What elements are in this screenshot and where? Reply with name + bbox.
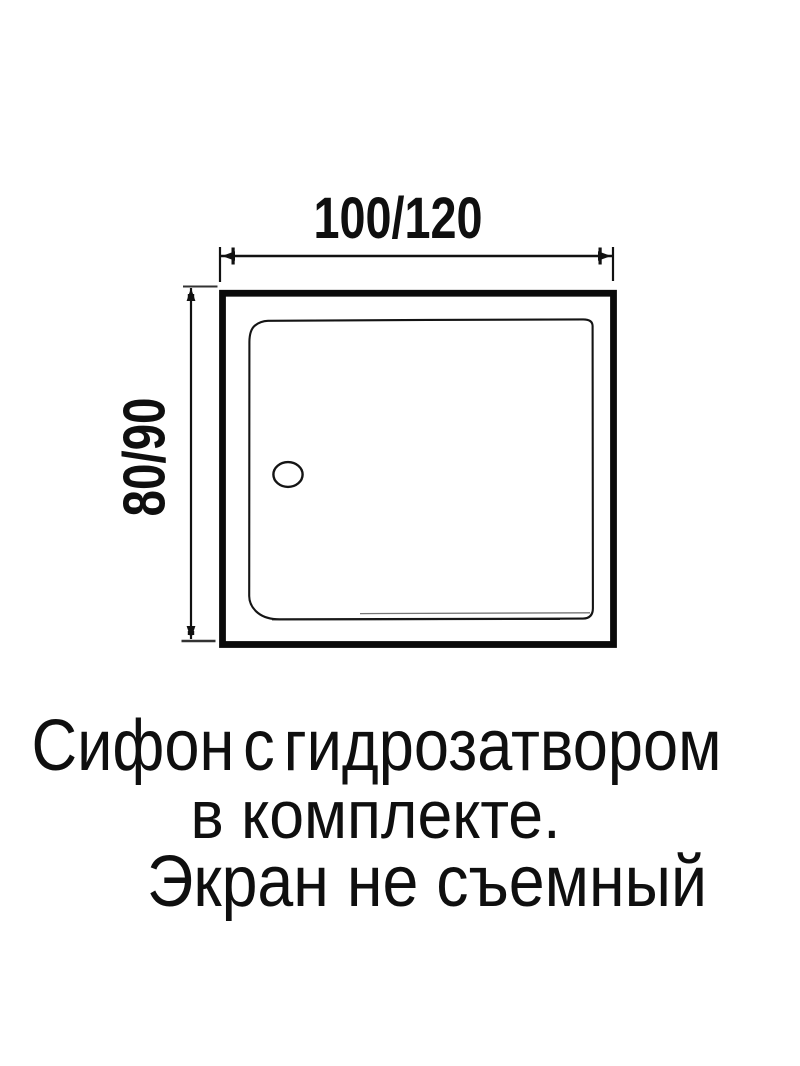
svg-text:100/120: 100/120	[314, 186, 483, 251]
svg-text:80/90: 80/90	[112, 398, 178, 517]
svg-text:Сифон с гидрозатвором: Сифон с гидрозатвором	[32, 705, 722, 786]
svg-text:Экран не съемный: Экран не съемный	[147, 841, 707, 922]
